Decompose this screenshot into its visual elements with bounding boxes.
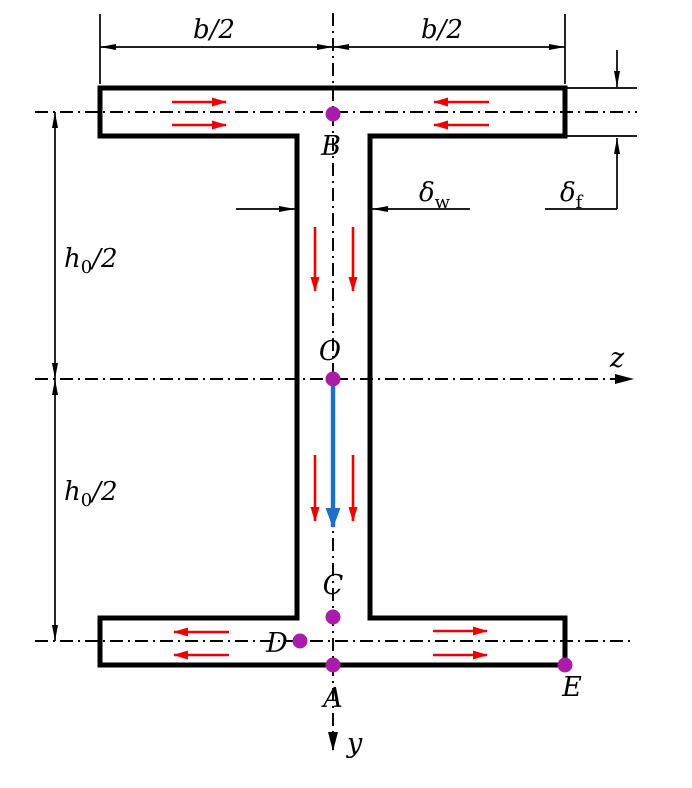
label-b-half-left: b/2 bbox=[193, 15, 235, 45]
point-marker-E bbox=[558, 658, 573, 673]
ibeam-shear-flow-diagram: b/2 b/2 h0/2 h0/2 δw δf bbox=[0, 0, 692, 788]
point-marker-A bbox=[326, 658, 341, 673]
label-point-C: C bbox=[323, 570, 344, 601]
ibeam-shear-flow-figure: b/2 b/2 h0/2 h0/2 δw δf bbox=[0, 0, 692, 788]
dimension-h0-half-top: h0/2 bbox=[55, 112, 118, 379]
label-delta-w: δw bbox=[419, 178, 451, 213]
point-marker-O bbox=[326, 372, 341, 387]
label-b-half-right: b/2 bbox=[421, 15, 463, 45]
dimension-b-half-right: b/2 bbox=[333, 14, 565, 84]
dimension-delta-f: δf bbox=[545, 50, 637, 213]
label-delta-f: δf bbox=[560, 178, 584, 213]
point-marker-D bbox=[293, 634, 308, 649]
label-h0-half-top: h0/2 bbox=[64, 244, 118, 278]
dimension-b-half-left: b/2 bbox=[100, 14, 333, 84]
label-axis-z: z bbox=[609, 343, 625, 374]
label-point-D: D bbox=[265, 628, 288, 659]
label-point-E: E bbox=[561, 672, 582, 703]
dimension-delta-w: δw bbox=[236, 178, 470, 213]
dimension-h0-half-bottom: h0/2 bbox=[55, 379, 118, 641]
point-marker-B bbox=[326, 107, 341, 122]
point-marker-C bbox=[326, 610, 341, 625]
label-point-B: B bbox=[320, 131, 341, 162]
label-axis-y: y bbox=[346, 728, 363, 759]
label-point-O: O bbox=[319, 336, 341, 367]
label-point-A: A bbox=[320, 683, 343, 714]
label-h0-half-bottom: h0/2 bbox=[64, 477, 118, 511]
